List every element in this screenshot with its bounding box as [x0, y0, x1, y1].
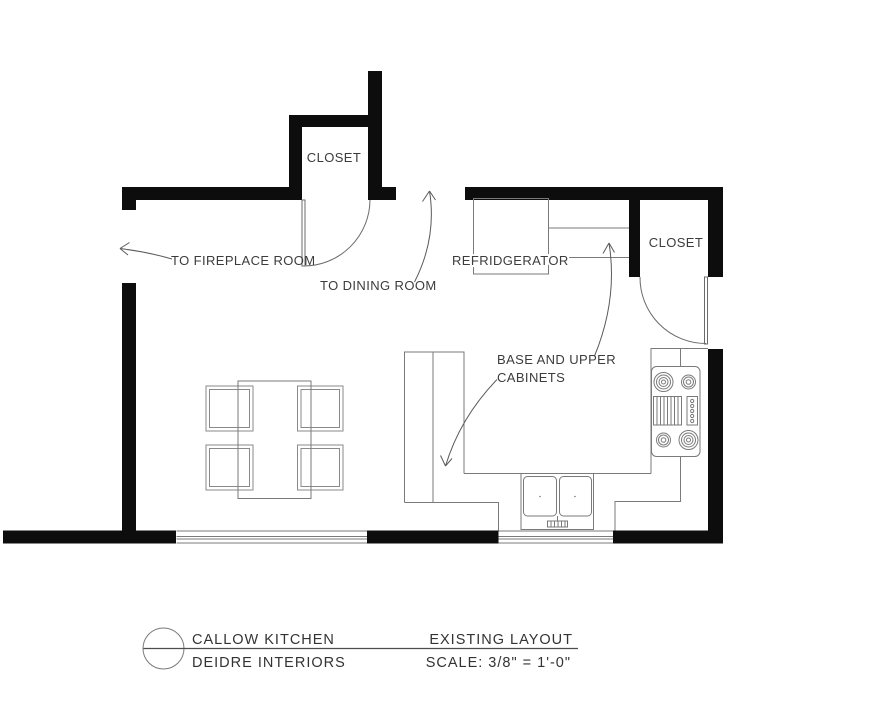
cabinets-label-line2: CABINETS	[497, 370, 565, 385]
wall-closet-right-left-side	[629, 187, 640, 277]
drawing-scale: SCALE: 3/8" = 1'-0"	[426, 655, 571, 671]
window-bottom-left	[177, 531, 368, 543]
closet-right-label: CLOSET	[649, 235, 703, 250]
title-block: CALLOW KITCHEN EXISTING LAYOUT DEIDRE IN…	[143, 628, 578, 671]
walls	[3, 71, 723, 544]
wall-stub-right-of-closet	[368, 187, 396, 200]
wall-closet-top-left-side	[289, 115, 302, 200]
floor-plan-page: CLOSET CLOSET REFRIDGERATOR TO FIREPLACE…	[0, 0, 880, 704]
chair-top-right	[298, 386, 344, 431]
to-fireplace-label: TO FIREPLACE ROOM	[171, 253, 316, 268]
closet-top-label: CLOSET	[307, 150, 361, 165]
wall-bottom-b	[367, 531, 499, 544]
wall-right-lower	[708, 349, 723, 544]
wall-top-left	[122, 187, 302, 200]
project-name: CALLOW KITCHEN	[192, 632, 335, 648]
sink-drain-right	[574, 496, 576, 498]
chair-bottom-left	[206, 445, 253, 490]
closet-right-door	[640, 277, 708, 344]
to-dining-label: TO DINING ROOM	[320, 278, 437, 293]
arrow-cabinets-up	[595, 243, 615, 356]
peninsula-cabinet	[405, 352, 499, 531]
wall-right-upper	[708, 187, 723, 277]
stove	[652, 367, 701, 457]
kitchen-sink	[521, 474, 594, 530]
sink-faucet	[548, 516, 568, 527]
drawing-title: EXISTING LAYOUT	[429, 632, 573, 648]
arrow-cabinets-down	[441, 380, 498, 467]
dining-table-set	[206, 381, 343, 499]
chair-bottom-right	[298, 445, 344, 490]
arrow-to-dining	[415, 191, 436, 282]
wall-left-stub	[122, 187, 136, 210]
dining-table	[238, 381, 311, 499]
refrigerator-label: REFRIDGERATOR	[452, 253, 569, 268]
wall-closet-top-right-side	[368, 71, 382, 200]
sink-drain-left	[539, 496, 541, 498]
arrow-to-fireplace	[120, 243, 172, 260]
company-name: DEIDRE INTERIORS	[192, 655, 346, 671]
doors	[302, 200, 708, 344]
wall-bottom-a	[3, 531, 176, 544]
window-bottom-right	[499, 531, 614, 543]
wall-left-main	[122, 283, 136, 544]
wall-bottom-c	[613, 531, 723, 544]
floor-plan-drawing: CLOSET CLOSET REFRIDGERATOR TO FIREPLACE…	[0, 0, 880, 704]
annotation-arrows	[120, 191, 615, 466]
chair-top-left	[206, 386, 253, 431]
cabinets-label-line1: BASE AND UPPER	[497, 352, 616, 367]
